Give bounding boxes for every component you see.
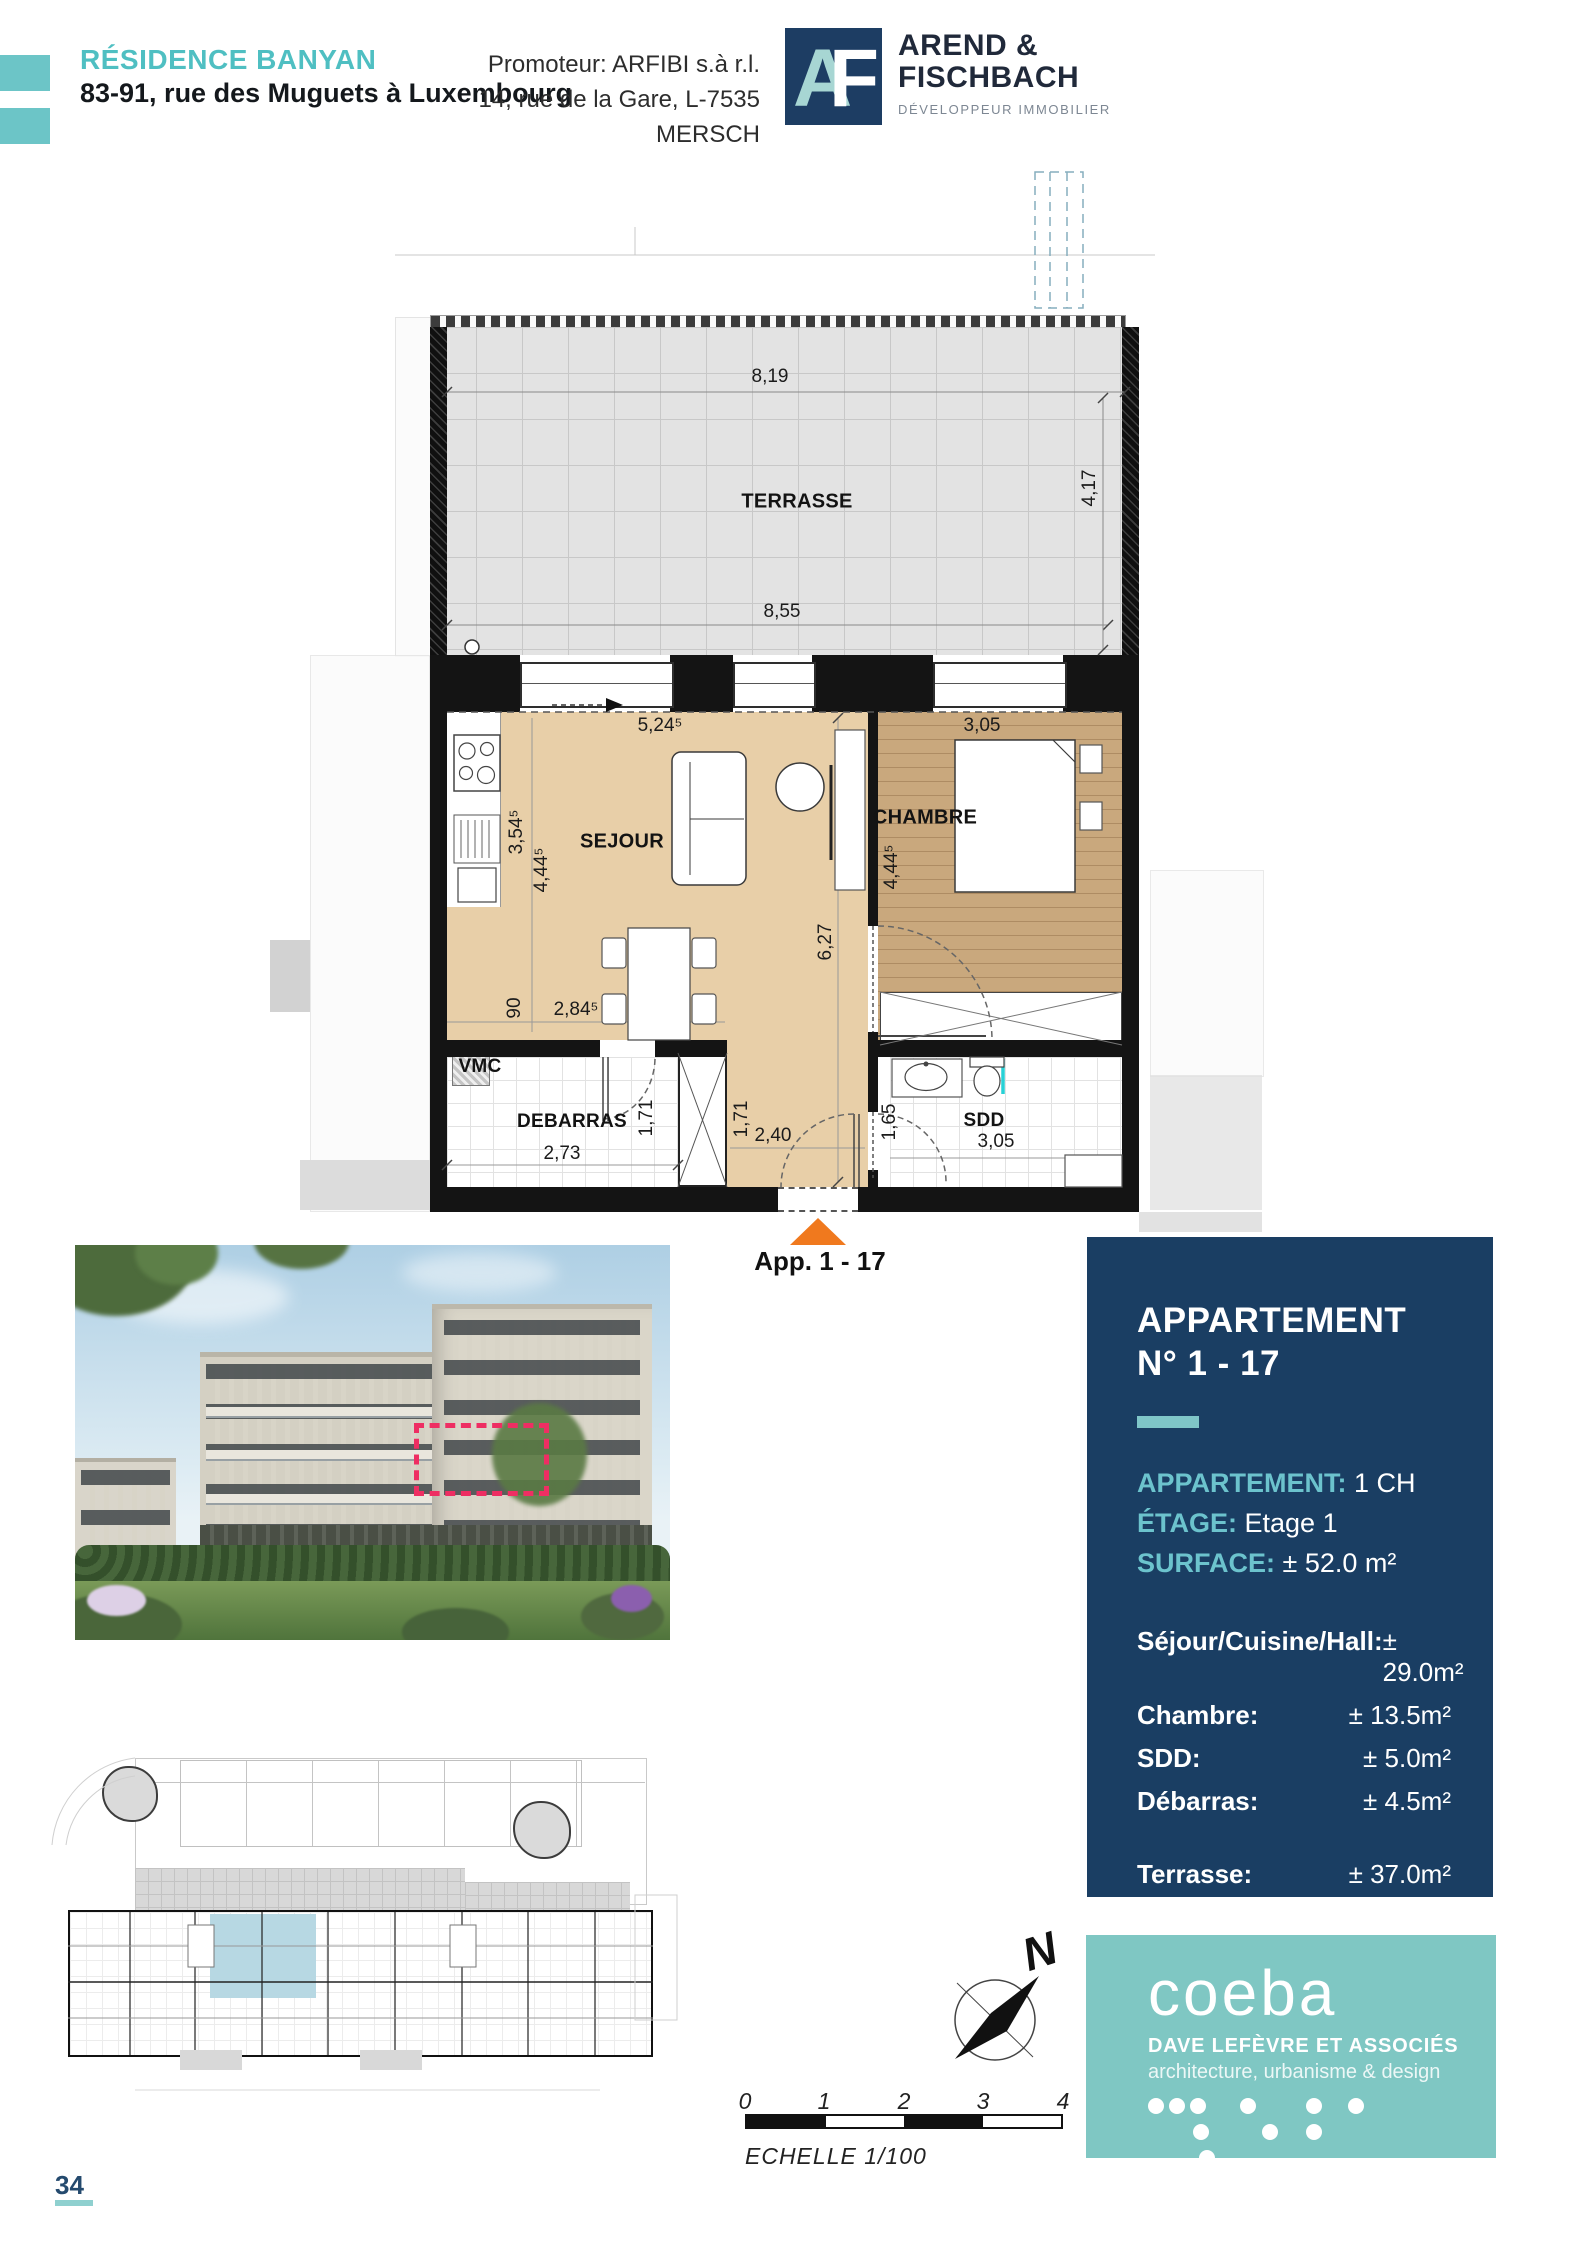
area-sdd-label: SDD:: [1137, 1743, 1201, 1774]
teal-square-decoration: [0, 108, 50, 144]
area-sdd-value: ± 5.0m²: [1363, 1743, 1451, 1774]
promoter-line2: 14, rue de la Gare, L-7535 MERSCH: [420, 83, 760, 153]
dim-debarras-depth: 1,71: [636, 1100, 658, 1137]
logo-tagline: DÉVELOPPEUR IMMOBILIER: [898, 102, 1111, 117]
area-terrasse-label: Terrasse:: [1137, 1859, 1252, 1890]
dim-hall-depth: 1,71: [731, 1101, 753, 1138]
coeba-subtitle: DAVE LEFÈVRE ET ASSOCIÉS: [1148, 2035, 1496, 2058]
left-wing-windows: [206, 1364, 438, 1530]
sdd-label: SDD: [963, 1110, 1004, 1132]
site-linework: [40, 1750, 680, 2170]
spec-type: APPARTEMENT: 1 CH: [1137, 1468, 1451, 1499]
area-chambre-label: Chambre:: [1137, 1700, 1258, 1731]
balcony-slab: [206, 1450, 438, 1459]
scale-segment: [904, 2116, 983, 2127]
spec-floor-value: Etage 1: [1245, 1508, 1338, 1538]
cloud: [402, 1253, 557, 1293]
balcony-slab: [206, 1407, 438, 1416]
project-name: RÉSIDENCE BANYAN: [80, 44, 376, 76]
scale-ticks: 0 1 2 3 4: [745, 2088, 1063, 2114]
dim-sejour-bottom: 2,84⁵: [554, 999, 599, 1021]
arend-fischbach-logo-icon: A F: [785, 28, 882, 125]
dim-sejour-depth: 4,44⁵: [531, 848, 553, 893]
area-sejour-value: ± 29.0m²: [1383, 1626, 1464, 1688]
scale-caption: ECHELLE 1/100: [745, 2143, 1063, 2170]
neighbour-building-windows: [81, 1470, 170, 1549]
sejour-label: SEJOUR: [580, 831, 664, 854]
dim-sejour-width: 5,24⁵: [638, 715, 683, 737]
dim-sdd-depth: 1,65: [879, 1104, 901, 1141]
coeba-brand: coeba: [1148, 1961, 1496, 2025]
brochure-page: RÉSIDENCE BANYAN 83-91, rue des Muguets …: [0, 0, 1575, 2260]
spec-surface-label: SURFACE:: [1137, 1548, 1275, 1578]
area-sejour-label: Séjour/Cuisine/Hall:: [1137, 1626, 1383, 1688]
area-chambre-value: ± 13.5m²: [1349, 1700, 1451, 1731]
scale-segment: [747, 2116, 826, 2127]
page-number: 34: [55, 2170, 84, 2201]
dim-terrace-width-top: 8,19: [752, 366, 789, 388]
panel-title: APPARTEMENT N° 1 - 17: [1137, 1299, 1451, 1386]
panel-title-line1: APPARTEMENT: [1137, 1299, 1451, 1342]
dim-chambre-depth: 4,44⁵: [881, 845, 903, 890]
area-row-chambre: Chambre: ± 13.5m²: [1137, 1700, 1451, 1731]
scale-tick: 2: [898, 2088, 911, 2115]
dim-terrace-width-inner: 8,55: [764, 601, 801, 623]
dim-debarras-width: 2,73: [544, 1143, 581, 1165]
spec-floor: ÉTAGE: Etage 1: [1137, 1508, 1451, 1539]
scale-tick: 4: [1057, 2088, 1070, 2115]
scale-tick: 3: [977, 2088, 990, 2115]
teal-square-decoration: [0, 55, 50, 91]
debarras-label: DEBARRAS: [517, 1111, 627, 1133]
vmc-label: VMC: [458, 1056, 501, 1078]
dim-chambre-width-top: 3,05: [964, 715, 1001, 737]
panel-spacer: [1137, 1829, 1451, 1859]
scale-segment: [983, 2116, 1062, 2127]
spec-surface-value: ± 52.0 m²: [1283, 1548, 1397, 1578]
braille-dots-icon: [1148, 2098, 1496, 2158]
scale-tick: 1: [818, 2088, 831, 2115]
coeba-tagline: architecture, urbanisme & design: [1148, 2061, 1496, 2084]
promoter-line1: Promoteur: ARFIBI s.à r.l.: [420, 48, 760, 83]
spec-type-label: APPARTEMENT:: [1137, 1468, 1347, 1498]
panel-spacer: [1137, 1588, 1451, 1626]
area-row-sejour: Séjour/Cuisine/Hall: ± 29.0m²: [1137, 1626, 1451, 1688]
spec-surface: SURFACE: ± 52.0 m²: [1137, 1548, 1451, 1579]
dim-hall-width: 2,40: [755, 1125, 792, 1147]
plan-linework: [270, 170, 1280, 1275]
balcony-slab: [206, 1494, 438, 1503]
area-row-debarras: Débarras: ± 4.5m²: [1137, 1786, 1451, 1817]
area-row-sdd: SDD: ± 5.0m²: [1137, 1743, 1451, 1774]
scale-segment: [826, 2116, 905, 2127]
dim-apartment-depth: 6,27: [815, 924, 837, 961]
apartment-entry-label: App. 1 - 17: [754, 1246, 885, 1277]
entry-arrow-icon: [790, 1218, 846, 1245]
logo-name-line1: AREND &: [898, 30, 1111, 62]
panel-accent-dash: [1137, 1416, 1199, 1428]
area-row-terrasse: Terrasse: ± 37.0m²: [1137, 1859, 1451, 1890]
logo-monogram-f: F: [829, 32, 879, 125]
building-rendering-photo: [75, 1245, 670, 1640]
tree-foliage: [254, 1245, 349, 1269]
spec-type-value: 1 CH: [1354, 1468, 1416, 1498]
dim-kitchen-width: 90: [504, 997, 526, 1018]
terrasse-label: TERRASSE: [741, 491, 852, 514]
page-number-underline: [55, 2200, 93, 2206]
panel-title-line2: N° 1 - 17: [1137, 1342, 1451, 1385]
architect-logo-block: coeba DAVE LEFÈVRE ET ASSOCIÉS architect…: [1086, 1935, 1496, 2158]
apartment-highlight-box: [414, 1423, 549, 1496]
promoter-block: Promoteur: ARFIBI s.à r.l. 14, rue de la…: [420, 48, 760, 152]
scale-bar-segments: [745, 2114, 1063, 2129]
area-debarras-value: ± 4.5m²: [1363, 1786, 1451, 1817]
dim-kitchen-depth: 3,54⁵: [506, 810, 528, 855]
apartment-floor-plan: TERRASSE SEJOUR CHAMBRE DEBARRAS SDD VMC…: [270, 170, 1280, 1275]
scale-bar: 0 1 2 3 4 ECHELLE 1/100: [745, 2088, 1063, 2170]
area-terrasse-value: ± 37.0m²: [1349, 1859, 1451, 1890]
chambre-label: CHAMBRE: [873, 807, 977, 830]
site-plan: [40, 1750, 680, 2170]
area-debarras-label: Débarras:: [1137, 1786, 1258, 1817]
logo-text-block: AREND & FISCHBACH DÉVELOPPEUR IMMOBILIER: [898, 30, 1111, 117]
dim-sdd-width: 3,05: [978, 1131, 1015, 1153]
spec-floor-label: ÉTAGE:: [1137, 1508, 1237, 1538]
logo-name-line2: FISCHBACH: [898, 62, 1111, 94]
apartment-info-panel: APPARTEMENT N° 1 - 17 APPARTEMENT: 1 CH …: [1087, 1237, 1493, 1897]
dim-terrace-depth: 4,17: [1079, 470, 1101, 507]
scale-tick: 0: [739, 2088, 752, 2115]
